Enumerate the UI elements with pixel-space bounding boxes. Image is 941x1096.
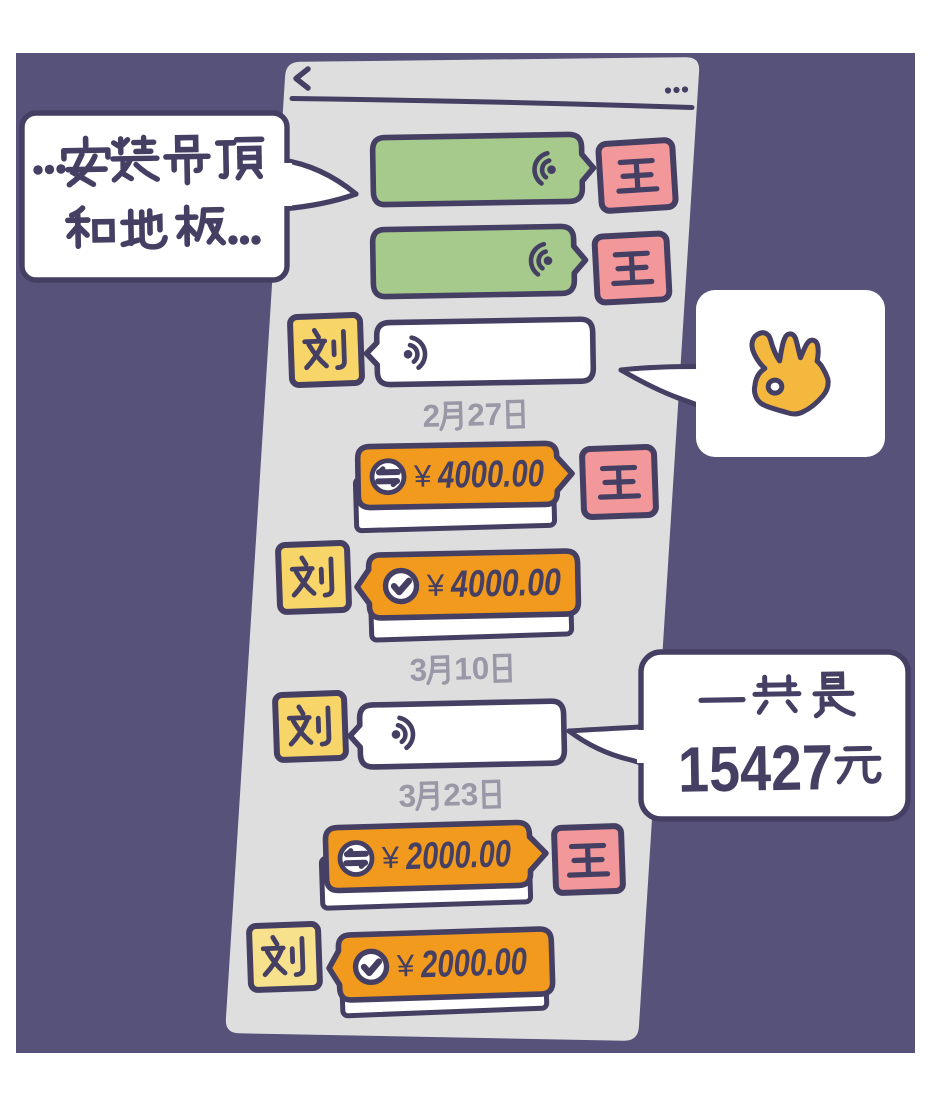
svg-text:27: 27 [467, 396, 503, 433]
svg-text:10: 10 [454, 650, 490, 687]
svg-text:¥: ¥ [395, 948, 415, 984]
svg-text:3: 3 [398, 777, 416, 813]
svg-text:4000.00: 4000.00 [437, 453, 544, 497]
svg-text:¥: ¥ [381, 840, 401, 876]
svg-text:23: 23 [443, 776, 479, 813]
svg-text:¥: ¥ [413, 458, 433, 493]
svg-text:¥: ¥ [426, 568, 446, 603]
svg-text:2000.00: 2000.00 [405, 833, 512, 878]
svg-text:15427: 15427 [677, 731, 833, 806]
svg-text:3: 3 [409, 651, 427, 687]
svg-text:2000.00: 2000.00 [420, 941, 528, 986]
svg-text:4000.00: 4000.00 [450, 562, 562, 606]
svg-text:2: 2 [422, 397, 440, 433]
